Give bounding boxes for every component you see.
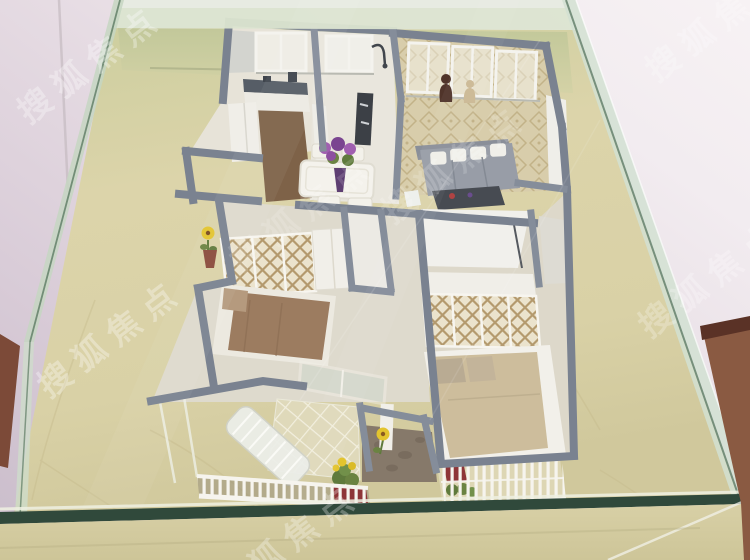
photo-rendering	[0, 0, 750, 560]
bed-right	[424, 345, 566, 466]
table-decor-purple	[468, 193, 473, 198]
photo-apartment-model-in-glass-case: 搜狐焦点 搜狐焦点 搜狐焦点 搜狐焦点 搜狐焦点 搜狐焦点 搜狐焦点	[0, 0, 750, 560]
wall-art-piece	[355, 93, 374, 146]
lattice-wardrobe	[423, 294, 540, 348]
wood-sliver-left	[0, 334, 20, 468]
wardrobe-top-rail	[421, 272, 536, 296]
bed-pillow	[466, 356, 496, 382]
wood-furniture-left	[0, 334, 20, 468]
background-wall-corner	[59, 0, 68, 192]
table-decor-red	[449, 193, 455, 199]
wall-fixture-head	[383, 64, 388, 69]
